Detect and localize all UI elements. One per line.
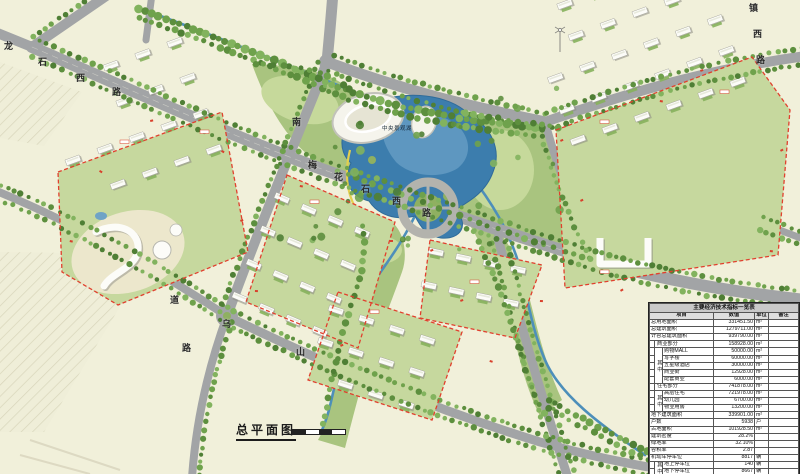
tree [517,244,522,249]
tree [420,199,426,205]
tree [6,186,10,190]
tree [144,84,150,90]
tree [506,118,511,123]
tree [406,78,411,83]
tree [66,230,71,235]
tree [367,82,373,88]
tree [506,229,513,236]
item-label: 占地面积 [650,426,714,433]
item-label: 购物MALL [663,348,714,355]
tree [484,126,492,134]
tree [401,383,405,387]
tree [547,392,552,397]
tree [90,81,96,87]
tree [540,232,544,236]
tree [176,21,182,27]
tree [69,72,73,76]
among-which-label: 其中 [655,348,663,383]
item-label: 容积率 [650,447,714,454]
unit-cell: m² [755,412,769,419]
note-cell [769,454,799,461]
tree [479,428,484,433]
tree [722,77,726,81]
tree [531,133,537,139]
tree [334,71,340,77]
tree [220,346,226,352]
tree [17,190,23,196]
tree [559,430,564,435]
tree [57,16,62,21]
tree [449,418,455,424]
item-label: 写字楼 [663,355,714,362]
tree [239,126,243,130]
value-cell: 13200.00 [714,405,755,412]
unit-cell: m² [755,426,769,433]
tree [230,308,236,314]
tree [346,59,351,64]
unit-cell [755,447,769,454]
tree [301,96,306,101]
tree [102,233,107,238]
tree [369,104,374,109]
tree [675,87,679,91]
tree [495,283,502,290]
tree [772,67,777,72]
tree [146,257,151,262]
tree [456,224,461,229]
tree [362,101,368,107]
note-cell [769,376,799,383]
tree [460,205,464,209]
tree [448,112,455,119]
table-cell [650,369,655,376]
tree [291,165,297,171]
tree [194,285,199,290]
tree [105,88,109,92]
tree [762,284,766,288]
tree [475,202,482,209]
tree [560,258,565,263]
tree [441,112,448,119]
tree [586,418,594,426]
tree [412,79,418,85]
tree [345,311,352,318]
tree [190,300,196,306]
tree [320,158,324,162]
tree [198,460,202,464]
tree [430,215,435,220]
tree [202,110,208,116]
tree [393,188,401,196]
unit-cell: m² [755,405,769,412]
tree [500,419,505,424]
tree [579,442,585,448]
tree [758,53,763,58]
tree [408,386,413,391]
note-cell [769,461,799,468]
item-label: 绿地率 [650,440,714,447]
tree [359,258,366,265]
unit-cell: m² [755,355,769,362]
tree [65,214,70,219]
tree [42,217,48,223]
value-cell: 60000.00 [714,355,755,362]
tree [548,450,554,456]
tree [383,71,387,75]
tree [226,327,232,333]
tree [266,183,271,188]
col-header: 数值 [714,313,755,320]
tree [233,143,237,147]
tree [367,174,371,178]
tree [635,260,641,266]
tree [565,439,571,445]
tree [581,458,587,464]
tree [367,192,373,198]
tree [591,429,598,436]
item-label: 机动车停车位 [650,454,714,461]
tree [263,192,268,197]
tree [390,181,394,185]
tree [356,121,364,129]
tree [27,210,32,215]
tree [149,107,154,112]
tree [448,221,453,226]
tree [482,213,487,218]
tree [356,275,363,282]
tree [348,303,354,309]
tree [428,84,432,88]
tree [476,238,482,244]
tree [202,307,207,312]
tree [424,117,431,124]
tree [582,98,587,103]
tree [328,81,335,88]
tree [253,132,259,138]
tree [555,206,563,214]
tree [244,332,249,337]
tree [229,49,236,56]
note-cell [769,419,799,426]
tree [355,284,360,289]
tree [94,228,99,233]
tree [728,297,733,302]
tree [414,115,421,122]
tree [520,359,526,365]
tree [779,65,784,70]
tree [673,287,677,291]
tree [361,82,365,86]
tree [275,140,280,145]
tree [464,226,470,232]
tree [583,265,587,269]
tree [557,403,563,409]
tree [497,271,502,276]
tree [565,454,571,460]
item-label: 高层住宅 [663,391,714,398]
tree [456,115,464,123]
tree [100,247,105,252]
item-label: 配套商业 [663,376,714,383]
tree [573,456,579,462]
tree [658,91,664,97]
tree [116,240,120,244]
tree [510,241,515,246]
tree [559,105,564,110]
tree [148,273,153,278]
tree [182,294,188,300]
tree [637,452,643,458]
tree [535,350,539,354]
tree [506,438,511,443]
tree [677,269,681,273]
tree [485,114,492,121]
tree [457,247,461,251]
tree [200,289,205,294]
value-cell: 8667 [714,469,755,474]
tree [317,233,325,241]
tree [492,128,499,135]
scale-segment [319,430,332,434]
tree [547,124,552,129]
tree [108,252,112,256]
tree [630,441,638,449]
tree [358,170,363,175]
tree [170,116,175,121]
tree [416,210,421,215]
tree [559,412,565,418]
tree [580,240,585,245]
note-cell [769,405,799,412]
tree [717,61,721,65]
tree [494,236,500,242]
tree [724,278,728,282]
note-cell [769,383,799,390]
tree [356,146,365,155]
unit-cell: 辆 [755,461,769,468]
tree [476,210,481,215]
item-label: 五星级酒店 [663,362,714,369]
tree [361,178,367,184]
tree [492,248,496,252]
tree [71,216,76,221]
tree [339,74,344,79]
tree [478,230,484,236]
tree [471,125,476,130]
tree [230,272,236,278]
tree [609,431,615,437]
tree [41,201,46,206]
tree [193,105,199,111]
tree [29,54,35,60]
tree [530,229,536,235]
tree [770,232,775,237]
tree [49,21,54,26]
tree [427,203,433,209]
tree [551,254,557,260]
tree [526,320,531,325]
tree [539,363,544,368]
tree [309,172,313,176]
tree [476,220,482,226]
tree [304,152,309,157]
red-marker [255,290,258,292]
tree [355,79,359,83]
tree [577,115,583,121]
tree [765,68,771,74]
tree [497,218,503,224]
tree [331,53,337,59]
tree [615,88,619,92]
tree [211,379,217,385]
tree [486,233,490,237]
tree [208,395,213,400]
tree [522,305,526,309]
tree [540,134,545,139]
tree [209,42,214,47]
tree [622,437,629,444]
tree [464,124,469,129]
value-cell: 339901.00 [714,412,755,419]
tree [516,441,521,446]
tree [88,225,93,230]
tree [543,433,549,439]
tree [454,405,458,409]
tree [499,129,504,134]
value-cell: 939790.00 [714,334,755,341]
tree [324,178,329,183]
tree [333,145,338,150]
tree [155,277,160,282]
tree [376,69,380,73]
item-label: 地上停车位 [663,461,714,468]
tree [699,64,704,69]
tree [471,424,477,430]
note-cell [769,447,799,454]
tree [523,443,528,448]
tree [349,362,355,368]
tree [645,96,650,101]
tree [306,343,311,348]
tree [75,3,81,9]
value-cell: 140 [714,461,755,468]
tree [210,133,214,137]
tree [345,85,352,92]
tree [523,132,528,137]
tree [315,60,320,65]
tree [766,50,771,55]
tree [172,97,177,102]
tree [482,254,488,260]
tree [536,356,542,362]
unit-cell: m² [755,362,769,369]
tree [556,422,562,428]
tree [224,120,228,124]
tree [218,318,222,322]
table-cell [650,355,655,362]
tree [169,286,174,291]
tree [299,65,304,70]
tree [566,209,572,215]
tree [699,273,705,279]
tree [249,228,255,234]
tree [579,254,586,261]
tree [203,419,208,424]
tree [241,45,250,54]
tree [622,467,627,472]
tree [481,98,485,102]
tree [553,462,557,466]
tree [439,105,444,110]
tree [126,97,132,103]
tree [302,77,310,85]
tree [185,32,191,38]
tree [215,367,219,371]
tree [630,82,636,88]
tree [181,121,185,125]
tree [165,26,170,31]
tree [323,84,327,88]
tree [716,277,722,283]
item-label: 物业用房 [663,405,714,412]
plan-tag [370,310,379,314]
tree [649,262,655,268]
tree [226,287,232,293]
tree [546,397,552,403]
tree [406,113,414,121]
tree [334,208,341,215]
tree [502,302,507,307]
unit-cell: m² [755,320,769,327]
tree [535,431,541,437]
tree [763,230,769,236]
tree [518,292,522,296]
tree [462,406,466,410]
tree [385,100,392,107]
tree [154,12,163,21]
tree [514,130,520,136]
tree [157,111,161,115]
tree [329,376,335,382]
tree [644,262,648,266]
tree [506,246,512,252]
tree [272,170,276,174]
unit-cell: m² [755,341,769,348]
tree [229,319,235,325]
tree [44,41,49,46]
tree [580,415,587,422]
tree [691,271,697,277]
tree [35,199,39,203]
tree [787,65,791,69]
tree [524,246,528,250]
tree [432,117,440,125]
tree [82,237,87,242]
tree [137,81,142,86]
tree [38,39,42,43]
tree [756,282,761,287]
tree [381,178,387,184]
tree [299,168,304,173]
tree [521,235,528,242]
tree [156,22,162,28]
tree [719,294,725,300]
tree [565,408,571,414]
tree [75,55,81,61]
tree [112,254,118,260]
tree [524,121,529,126]
tree [359,63,365,69]
